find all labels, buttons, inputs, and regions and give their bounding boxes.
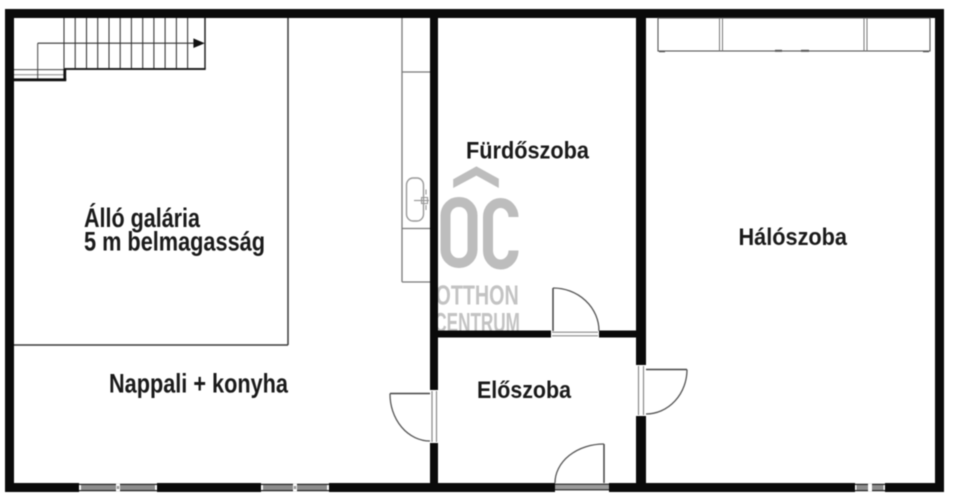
svg-text:Hálószoba: Hálószoba xyxy=(739,224,848,251)
svg-text:5 m belmagasság: 5 m belmagasság xyxy=(84,227,265,257)
svg-text:Nappali + konyha: Nappali + konyha xyxy=(109,368,289,398)
svg-text:Előszoba: Előszoba xyxy=(477,377,571,404)
svg-text:Fürdőszoba: Fürdőszoba xyxy=(466,138,589,165)
